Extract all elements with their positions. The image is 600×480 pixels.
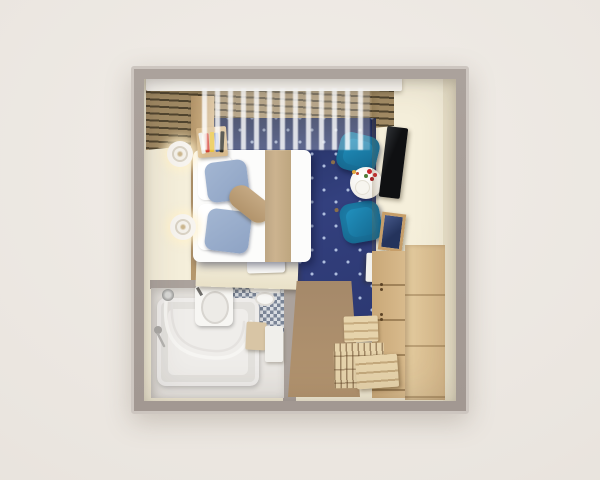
- sink: [195, 284, 233, 326]
- wall-lamp: [170, 214, 196, 240]
- faucet-icon: [196, 287, 203, 296]
- wall-tv: [379, 126, 408, 199]
- wardrobe-side-panel: [405, 245, 445, 400]
- drawer-handle: [380, 318, 383, 321]
- wall-lamp: [167, 141, 193, 167]
- scene-description: Top-down 3D cutaway rendering of a compa…: [0, 0, 1, 1]
- food-plate: [355, 180, 370, 195]
- fruit-icon: [356, 172, 359, 175]
- sheer-curtain: [202, 88, 370, 150]
- drawer-handle: [380, 313, 383, 316]
- toilet-bowl: [255, 292, 275, 307]
- stool: [245, 321, 266, 350]
- double-bed: [193, 150, 311, 262]
- waste-bin: [162, 289, 174, 301]
- room-interior: [144, 79, 456, 401]
- render-canvas: Top-down 3D cutaway rendering of a compa…: [0, 0, 600, 480]
- leaf-icon: [364, 174, 368, 178]
- drawer-handle: [380, 288, 383, 291]
- bed-runner: [265, 150, 291, 262]
- drawer-handle: [380, 283, 383, 286]
- room-outer-wall: [131, 66, 469, 414]
- framed-mirror: [378, 212, 406, 253]
- bench-footboard: [355, 354, 399, 390]
- wooden-box: [344, 315, 379, 342]
- bath-cabinet: [265, 326, 283, 362]
